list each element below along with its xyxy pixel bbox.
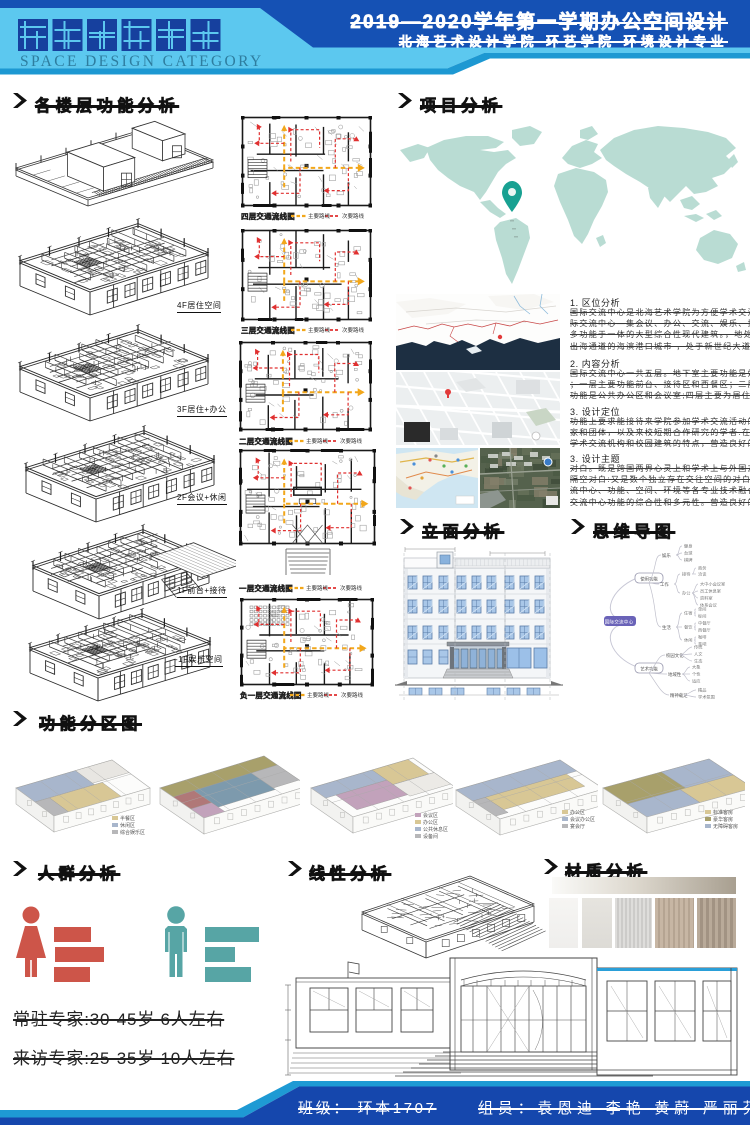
svg-text:学术氛围: 学术氛围 bbox=[698, 694, 715, 701]
svg-text:娱乐: 娱乐 bbox=[662, 552, 671, 559]
svg-text:健身: 健身 bbox=[684, 543, 692, 550]
svg-text:员工休息室: 员工休息室 bbox=[700, 588, 721, 595]
svg-text:棋牌: 棋牌 bbox=[684, 557, 692, 564]
svg-text:办公: 办公 bbox=[682, 590, 691, 597]
svg-text:工作: 工作 bbox=[660, 581, 669, 588]
svg-text:洽谈: 洽谈 bbox=[698, 571, 707, 578]
svg-text:生活: 生活 bbox=[662, 624, 671, 631]
svg-text:生态: 生态 bbox=[694, 658, 702, 664]
svg-text:艺术功能: 艺术功能 bbox=[640, 666, 658, 673]
svg-text:传统: 传统 bbox=[694, 644, 702, 651]
svg-text:台球: 台球 bbox=[684, 550, 693, 557]
svg-text:适应: 适应 bbox=[692, 678, 700, 685]
svg-text:西餐厅: 西餐厅 bbox=[698, 627, 711, 634]
svg-text:使用功能: 使用功能 bbox=[640, 576, 658, 583]
svg-text:精品: 精品 bbox=[698, 687, 706, 694]
svg-text:餐饮: 餐饮 bbox=[684, 624, 693, 631]
svg-text:国际交流中心: 国际交流中心 bbox=[605, 619, 634, 626]
svg-text:单间: 单间 bbox=[698, 606, 706, 613]
svg-text:地域性: 地域性 bbox=[668, 671, 682, 678]
svg-text:中餐厅: 中餐厅 bbox=[698, 620, 711, 627]
svg-text:休闲: 休闲 bbox=[684, 637, 692, 644]
svg-text:个性: 个性 bbox=[692, 671, 700, 678]
svg-text:大象: 大象 bbox=[692, 664, 700, 671]
svg-text:商务: 商务 bbox=[698, 565, 707, 572]
svg-text:大中小会议室: 大中小会议室 bbox=[700, 581, 725, 588]
svg-text:人文: 人文 bbox=[694, 651, 703, 658]
svg-text:接待: 接待 bbox=[682, 571, 691, 578]
svg-text:资料室: 资料室 bbox=[700, 595, 713, 602]
svg-text:标间: 标间 bbox=[698, 613, 706, 620]
svg-text:咖啡: 咖啡 bbox=[698, 634, 707, 641]
svg-text:住宿: 住宿 bbox=[684, 610, 692, 617]
